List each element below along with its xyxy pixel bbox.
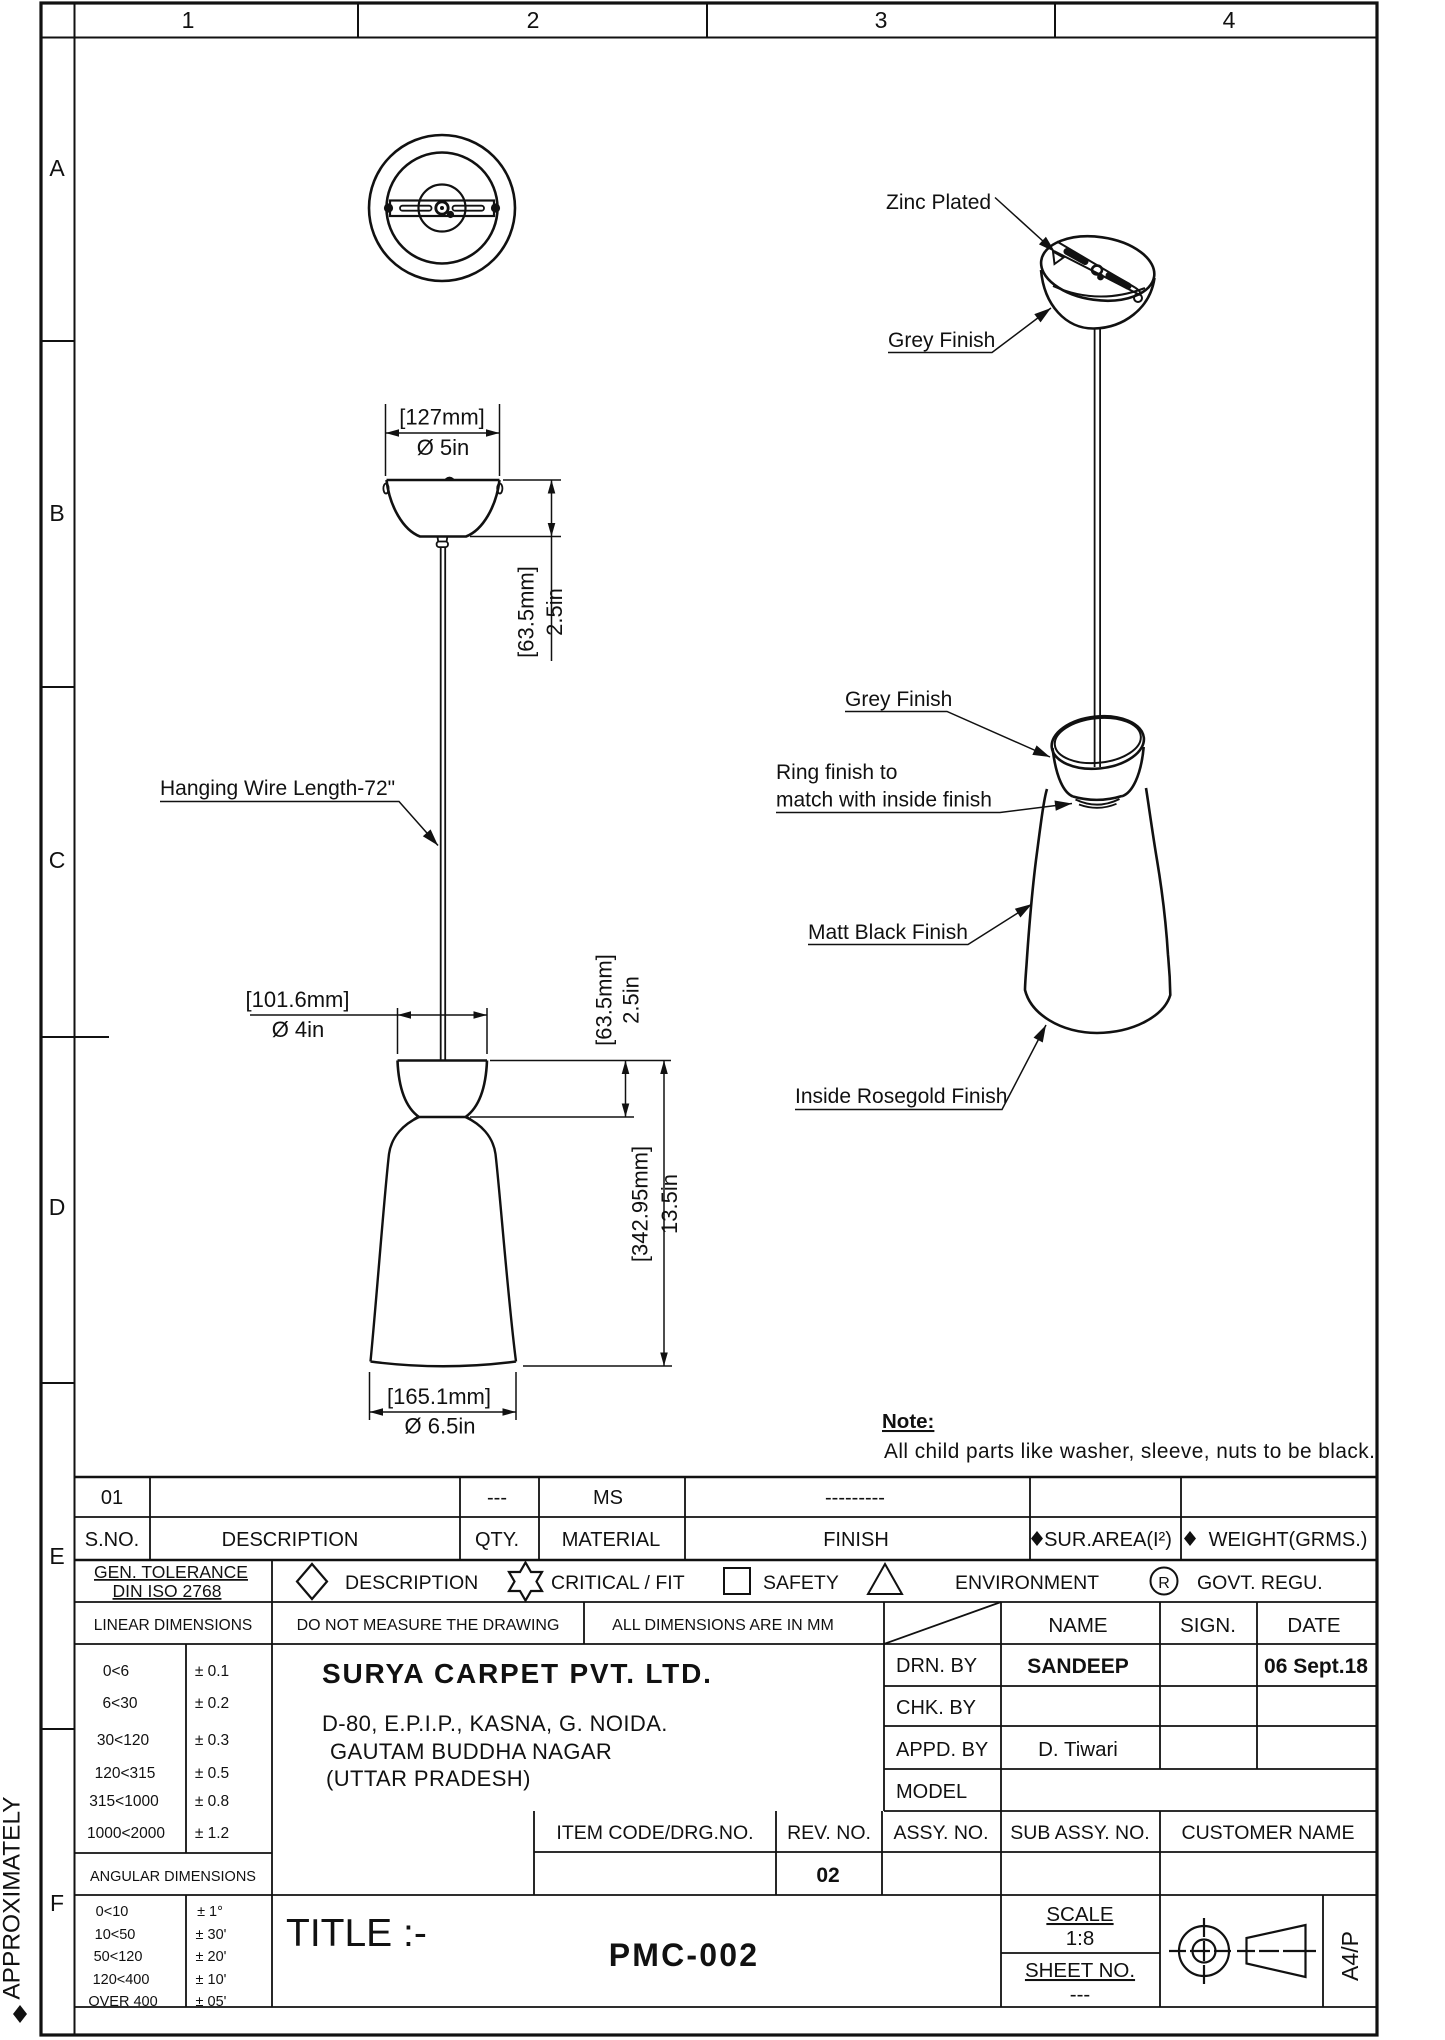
svg-text:S.NO.: S.NO. (85, 1529, 139, 1551)
svg-text:DIN ISO 2768: DIN ISO 2768 (113, 1581, 222, 1601)
svg-text:PMC-002: PMC-002 (609, 1937, 760, 1973)
svg-text:2.5in: 2.5in (542, 588, 567, 636)
svg-text:± 1.2: ± 1.2 (195, 1825, 229, 1842)
svg-text:E: E (49, 1543, 64, 1569)
svg-text:F: F (50, 1890, 64, 1916)
svg-text:± 20': ± 20' (196, 1949, 227, 1965)
svg-text:DESCRIPTION: DESCRIPTION (222, 1529, 359, 1551)
svg-text:match with inside finish: match with inside finish (776, 789, 992, 812)
svg-text:Grey Finish: Grey Finish (845, 688, 952, 711)
svg-text:MATERIAL: MATERIAL (562, 1529, 661, 1551)
svg-text:MODEL: MODEL (896, 1781, 967, 1803)
svg-text:2: 2 (527, 7, 540, 33)
svg-text:APPD. BY: APPD. BY (896, 1739, 988, 1761)
svg-text:4: 4 (1223, 7, 1236, 33)
svg-text:SHEET NO.: SHEET NO. (1025, 1959, 1135, 1982)
svg-text:DESCRIPTION: DESCRIPTION (345, 1572, 478, 1594)
svg-text:CHK. BY: CHK. BY (896, 1697, 976, 1719)
svg-text:6<30: 6<30 (103, 1695, 138, 1712)
svg-text:ANGULAR DIMENSIONS: ANGULAR DIMENSIONS (90, 1869, 256, 1885)
svg-text:SURYA CARPET PVT. LTD.: SURYA CARPET PVT. LTD. (322, 1658, 713, 1689)
svg-text:0<6: 0<6 (103, 1663, 129, 1680)
svg-text:315<1000: 315<1000 (89, 1793, 159, 1810)
svg-text:CRITICAL / FIT: CRITICAL / FIT (551, 1572, 685, 1594)
svg-text:Ø 4in: Ø 4in (272, 1017, 325, 1042)
svg-text:Ring finish to: Ring finish to (776, 761, 897, 784)
svg-text:[342.95mm]: [342.95mm] (628, 1146, 653, 1262)
svg-text:R: R (1158, 1575, 1170, 1592)
svg-text:SAFETY: SAFETY (763, 1572, 839, 1594)
svg-text:± 0.3: ± 0.3 (195, 1732, 229, 1749)
svg-text:[63.5mm]: [63.5mm] (592, 954, 617, 1046)
svg-text:DO NOT MEASURE THE DRAWING: DO NOT MEASURE THE DRAWING (297, 1617, 560, 1634)
svg-text:---------: --------- (825, 1487, 885, 1509)
svg-text:ENVIRONMENT: ENVIRONMENT (955, 1572, 1099, 1594)
svg-text:A: A (49, 155, 65, 181)
svg-text:± 1°: ± 1° (197, 1904, 223, 1920)
svg-text:SANDEEP: SANDEEP (1027, 1655, 1129, 1678)
svg-text:WEIGHT(GRMS.): WEIGHT(GRMS.) (1209, 1529, 1368, 1551)
svg-text:TITLE :-: TITLE :- (286, 1912, 427, 1955)
svg-text:3: 3 (875, 7, 888, 33)
svg-text:Zinc Plated: Zinc Plated (886, 191, 991, 214)
svg-text:120<400: 120<400 (93, 1972, 150, 1988)
svg-text:APPROXIMATELY: APPROXIMATELY (0, 1796, 26, 1999)
svg-text:± 30': ± 30' (196, 1927, 227, 1943)
svg-text:± 0.8: ± 0.8 (195, 1793, 229, 1810)
svg-text:FINISH: FINISH (823, 1529, 889, 1551)
svg-text:---: --- (1070, 1983, 1090, 2006)
svg-text:All child parts like washer, s: All child parts like washer, sleeve, nut… (884, 1440, 1375, 1463)
svg-text:GEN. TOLERANCE: GEN. TOLERANCE (94, 1562, 248, 1582)
svg-text:NAME: NAME (1048, 1614, 1107, 1637)
svg-text:1: 1 (182, 7, 195, 33)
svg-text:ASSY. NO.: ASSY. NO. (893, 1822, 988, 1844)
svg-text:SIGN.: SIGN. (1180, 1614, 1236, 1637)
svg-text:D. Tiwari: D. Tiwari (1038, 1738, 1118, 1761)
svg-text:SCALE: SCALE (1046, 1903, 1113, 1926)
svg-text:SUR.AREA(I²): SUR.AREA(I²) (1044, 1529, 1172, 1551)
svg-text:DRN. BY: DRN. BY (896, 1655, 977, 1677)
svg-text:± 10': ± 10' (196, 1972, 227, 1988)
svg-text:---: --- (487, 1487, 507, 1509)
svg-text:GOVT. REGU.: GOVT. REGU. (1197, 1572, 1323, 1594)
svg-text:Note:: Note: (882, 1410, 934, 1433)
svg-text:Ø 5in: Ø 5in (417, 435, 470, 460)
svg-text:0<10: 0<10 (96, 1904, 129, 1920)
svg-text:2.5in: 2.5in (619, 976, 644, 1024)
svg-text:C: C (49, 847, 66, 873)
svg-text:Hanging Wire Length-72": Hanging Wire Length-72" (160, 777, 395, 800)
svg-text:CUSTOMER NAME: CUSTOMER NAME (1182, 1822, 1355, 1844)
svg-text:[101.6mm]: [101.6mm] (246, 987, 350, 1012)
svg-text:MS: MS (593, 1487, 623, 1509)
svg-text:SUB ASSY. NO.: SUB ASSY. NO. (1010, 1822, 1149, 1844)
svg-text:1:8: 1:8 (1066, 1927, 1095, 1950)
svg-text:Matt Black Finish: Matt Black Finish (808, 921, 968, 944)
svg-text:D: D (49, 1194, 66, 1220)
svg-text:01: 01 (101, 1487, 123, 1509)
svg-text:B: B (49, 500, 64, 526)
svg-text:(UTTAR PRADESH): (UTTAR PRADESH) (326, 1766, 531, 1791)
svg-text:Grey Finish: Grey Finish (888, 329, 995, 352)
svg-text:QTY.: QTY. (475, 1529, 519, 1551)
svg-text:06 Sept.18: 06 Sept.18 (1264, 1655, 1368, 1678)
svg-text:Ø 6.5in: Ø 6.5in (405, 1414, 476, 1439)
svg-text:[63.5mm]: [63.5mm] (514, 566, 539, 658)
svg-text:120<315: 120<315 (95, 1765, 156, 1782)
svg-text:D-80, E.P.I.P., KASNA, G. NOID: D-80, E.P.I.P., KASNA, G. NOIDA. (322, 1711, 668, 1736)
svg-text:A4/P: A4/P (1337, 1931, 1363, 1981)
svg-text:DATE: DATE (1287, 1614, 1340, 1637)
svg-text:LINEAR DIMENSIONS: LINEAR DIMENSIONS (94, 1617, 252, 1634)
svg-text:[165.1mm]: [165.1mm] (387, 1384, 491, 1409)
svg-text:ALL DIMENSIONS ARE IN MM: ALL DIMENSIONS ARE IN MM (612, 1617, 834, 1634)
svg-text:REV. NO.: REV. NO. (787, 1822, 871, 1844)
svg-text:± 0.1: ± 0.1 (195, 1663, 229, 1680)
svg-text:50<120: 50<120 (94, 1949, 143, 1965)
svg-text:ITEM CODE/DRG.NO.: ITEM CODE/DRG.NO. (556, 1822, 753, 1844)
svg-text:02: 02 (816, 1864, 839, 1887)
svg-text:± 0.5: ± 0.5 (195, 1765, 229, 1782)
svg-text:30<120: 30<120 (97, 1732, 150, 1749)
svg-text:13.5in: 13.5in (657, 1174, 682, 1234)
svg-text:GAUTAM BUDDHA NAGAR: GAUTAM BUDDHA NAGAR (330, 1739, 612, 1764)
svg-text:Inside Rosegold Finish: Inside Rosegold Finish (795, 1085, 1007, 1108)
svg-text:± 0.2: ± 0.2 (195, 1695, 229, 1712)
svg-text:[127mm]: [127mm] (399, 405, 485, 430)
svg-text:10<50: 10<50 (95, 1927, 136, 1943)
svg-text:1000<2000: 1000<2000 (87, 1825, 165, 1842)
